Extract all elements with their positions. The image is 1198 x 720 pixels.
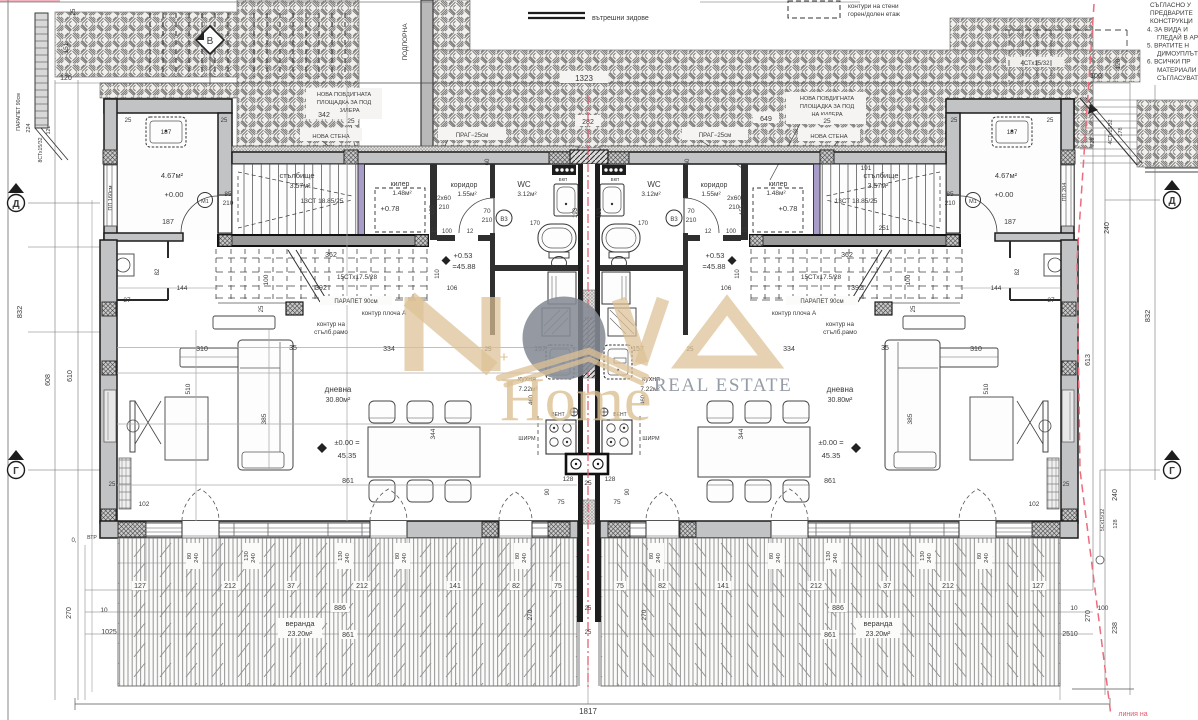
svg-text:25: 25 bbox=[585, 630, 592, 636]
svg-text:килер: килер bbox=[391, 181, 410, 188]
svg-text:СЪГЛАСУВАТ: СЪГЛАСУВАТ bbox=[1157, 75, 1198, 82]
svg-text:270: 270 bbox=[641, 609, 648, 620]
svg-text:210: 210 bbox=[729, 204, 740, 211]
svg-text:70: 70 bbox=[687, 208, 695, 215]
svg-text:861: 861 bbox=[342, 632, 354, 639]
svg-text:75: 75 bbox=[557, 499, 565, 506]
svg-text:6. ВСИЧКИ ПР: 6. ВСИЧКИ ПР bbox=[1147, 59, 1191, 66]
svg-text:130: 130 bbox=[244, 551, 250, 561]
svg-text:187: 187 bbox=[1007, 129, 1018, 136]
svg-text:ВКП: ВКП bbox=[611, 177, 620, 182]
svg-text:240: 240 bbox=[833, 553, 839, 563]
svg-text:80: 80 bbox=[769, 553, 775, 559]
svg-text:±0.00 =: ±0.00 = bbox=[818, 438, 844, 447]
svg-text:106: 106 bbox=[447, 285, 458, 292]
svg-text:151: 151 bbox=[63, 42, 70, 53]
svg-text:ПП 204: ПП 204 bbox=[1062, 183, 1068, 202]
svg-text:212: 212 bbox=[356, 583, 368, 590]
svg-text:861: 861 bbox=[342, 478, 354, 485]
svg-text:+: + bbox=[500, 349, 509, 366]
svg-text:М1: М1 bbox=[969, 199, 977, 205]
svg-text:510: 510 bbox=[983, 383, 990, 394]
svg-text:25: 25 bbox=[259, 305, 265, 312]
svg-text:155: 155 bbox=[430, 204, 436, 215]
svg-text:ПЛОЩАДКА ЗА ПОД: ПЛОЩАДКА ЗА ПОД bbox=[317, 100, 371, 106]
svg-text:1323: 1323 bbox=[575, 74, 593, 83]
svg-text:75: 75 bbox=[554, 583, 562, 590]
svg-text:82: 82 bbox=[1015, 268, 1021, 275]
svg-text:385: 385 bbox=[907, 413, 914, 424]
svg-text:155: 155 bbox=[740, 204, 746, 215]
svg-text:85: 85 bbox=[946, 191, 954, 198]
svg-text:82: 82 bbox=[658, 583, 666, 590]
svg-text:251: 251 bbox=[879, 225, 890, 232]
svg-text:270: 270 bbox=[66, 607, 73, 619]
svg-text:5. ВРАТИТЕ Н: 5. ВРАТИТЕ Н bbox=[1147, 43, 1189, 50]
svg-text:1.48м²: 1.48м² bbox=[766, 190, 786, 197]
svg-text:3.12м²: 3.12м² bbox=[641, 191, 661, 198]
svg-text:ШИРМ: ШИРМ bbox=[518, 436, 536, 442]
svg-text:362: 362 bbox=[841, 252, 853, 259]
svg-text:=45.88: =45.88 bbox=[452, 262, 475, 271]
svg-text:веранда: веранда bbox=[285, 619, 315, 628]
svg-text:127: 127 bbox=[1032, 583, 1044, 590]
svg-text:+0.53: +0.53 bbox=[454, 251, 473, 260]
svg-text:1025: 1025 bbox=[101, 629, 117, 636]
svg-text:392: 392 bbox=[315, 285, 327, 292]
svg-text:270: 270 bbox=[527, 609, 534, 620]
svg-text:193: 193 bbox=[573, 207, 579, 218]
svg-text:861: 861 bbox=[824, 478, 836, 485]
svg-text:127: 127 bbox=[134, 583, 146, 590]
svg-text:100: 100 bbox=[1090, 73, 1102, 80]
svg-text:+0.53: +0.53 bbox=[706, 251, 725, 260]
svg-text:Д: Д bbox=[1168, 196, 1175, 207]
svg-text:1.48м²: 1.48м² bbox=[392, 190, 412, 197]
svg-text:ПАРАПЕТ 90см: ПАРАПЕТ 90см bbox=[16, 93, 22, 131]
svg-text:НОВА ПОВДИГНАТА: НОВА ПОВДИГНАТА bbox=[800, 96, 855, 102]
svg-text:141: 141 bbox=[449, 583, 461, 590]
svg-text:128: 128 bbox=[605, 476, 616, 483]
svg-text:212: 212 bbox=[810, 583, 822, 590]
svg-text:362: 362 bbox=[325, 252, 337, 259]
svg-text:REAL ESTATE: REAL ESTATE bbox=[654, 375, 792, 396]
svg-text:344: 344 bbox=[430, 428, 437, 439]
svg-text:25: 25 bbox=[109, 482, 116, 488]
svg-text:контур на: контур на bbox=[826, 321, 855, 328]
svg-text:25: 25 bbox=[1047, 118, 1054, 124]
svg-text:4. ЗА ВИДА И: 4. ЗА ВИДА И bbox=[1147, 26, 1188, 33]
svg-text:37: 37 bbox=[883, 583, 891, 590]
svg-text:886: 886 bbox=[832, 605, 844, 612]
svg-text:613: 613 bbox=[1085, 354, 1092, 366]
svg-text:+0.00: +0.00 bbox=[995, 190, 1014, 199]
svg-text:310: 310 bbox=[196, 346, 208, 353]
svg-text:25: 25 bbox=[823, 118, 831, 125]
svg-text:212: 212 bbox=[224, 583, 236, 590]
svg-text:334: 334 bbox=[383, 346, 395, 353]
svg-text:В: В bbox=[207, 36, 214, 47]
svg-text:контур плоча А: контур плоча А bbox=[772, 310, 817, 317]
svg-text:линия на: линия на bbox=[1118, 711, 1147, 718]
svg-text:веранда: веранда bbox=[863, 619, 893, 628]
svg-text:130: 130 bbox=[338, 551, 344, 561]
svg-text:240: 240 bbox=[251, 553, 257, 563]
svg-text:385: 385 bbox=[261, 413, 268, 424]
svg-text:240: 240 bbox=[522, 553, 528, 563]
svg-text:дневна: дневна bbox=[325, 385, 352, 394]
svg-text:В3: В3 bbox=[500, 217, 508, 223]
svg-text:горен/долен етаж: горен/долен етаж bbox=[848, 11, 901, 18]
svg-text:35: 35 bbox=[289, 345, 297, 352]
svg-text:130: 130 bbox=[826, 551, 832, 561]
svg-text:2х60: 2х60 bbox=[437, 195, 451, 202]
svg-text:Г: Г bbox=[1169, 466, 1175, 477]
svg-text:12: 12 bbox=[467, 229, 474, 235]
svg-text:392: 392 bbox=[851, 285, 863, 292]
svg-text:832: 832 bbox=[15, 306, 24, 319]
svg-text:15СТх17.5/28: 15СТх17.5/28 bbox=[337, 274, 378, 281]
svg-text:80: 80 bbox=[395, 553, 401, 559]
svg-text:191: 191 bbox=[861, 165, 872, 172]
svg-text:8СТх15/32: 8СТх15/32 bbox=[38, 137, 44, 162]
svg-text:102: 102 bbox=[1029, 501, 1040, 508]
svg-text:Д: Д bbox=[12, 199, 19, 210]
svg-text:110: 110 bbox=[435, 269, 441, 279]
svg-text:75: 75 bbox=[613, 499, 621, 506]
svg-text:37: 37 bbox=[123, 297, 131, 304]
svg-text:30.80м²: 30.80м² bbox=[326, 397, 351, 404]
svg-text:240: 240 bbox=[1112, 489, 1119, 501]
svg-text:стълбище: стълбище bbox=[280, 171, 315, 180]
svg-text:+0.00: +0.00 bbox=[165, 190, 184, 199]
svg-text:187: 187 bbox=[161, 129, 172, 136]
svg-text:стълб.рамо: стълб.рамо bbox=[823, 328, 857, 336]
svg-text:60: 60 bbox=[485, 158, 491, 165]
svg-text:344: 344 bbox=[738, 428, 745, 439]
svg-text:Home: Home bbox=[500, 366, 652, 434]
svg-text:37: 37 bbox=[1047, 297, 1055, 304]
svg-text:дневна: дневна bbox=[827, 385, 854, 394]
svg-text:100: 100 bbox=[726, 229, 737, 235]
svg-text:НОВА СТЕНА: НОВА СТЕНА bbox=[810, 134, 847, 140]
svg-text:170: 170 bbox=[530, 221, 541, 227]
svg-text:1.55м²: 1.55м² bbox=[701, 191, 721, 198]
svg-text:1817: 1817 bbox=[579, 707, 597, 716]
svg-text:ВКП: ВКП bbox=[559, 177, 568, 182]
svg-text:25: 25 bbox=[1063, 482, 1070, 488]
svg-text:ПОДПОРНА: ПОДПОРНА bbox=[402, 23, 409, 61]
svg-text:106: 106 bbox=[721, 285, 732, 292]
svg-text:187: 187 bbox=[1004, 219, 1016, 226]
svg-text:12: 12 bbox=[741, 228, 748, 234]
svg-text:ПАРАПЕТ 90см: ПАРАПЕТ 90см bbox=[800, 299, 843, 305]
svg-text:212: 212 bbox=[942, 583, 954, 590]
svg-text:ГЛЕДАЙ В АР: ГЛЕДАЙ В АР bbox=[1157, 32, 1198, 41]
svg-text:120: 120 bbox=[1115, 58, 1122, 69]
svg-text:стълбище: стълбище bbox=[864, 171, 899, 180]
svg-text:60: 60 bbox=[685, 158, 691, 165]
svg-text:килер: килер bbox=[769, 181, 788, 188]
svg-text:649: 649 bbox=[760, 116, 772, 123]
svg-text:240: 240 bbox=[776, 553, 782, 563]
svg-text:75: 75 bbox=[616, 583, 624, 590]
svg-text:±0.00 =: ±0.00 = bbox=[334, 438, 360, 447]
svg-text:1.55м²: 1.55м² bbox=[457, 191, 477, 198]
svg-text:90: 90 bbox=[625, 488, 631, 495]
svg-text:13СТ 18.85/25: 13СТ 18.85/25 bbox=[301, 198, 344, 205]
svg-text:128: 128 bbox=[563, 476, 574, 483]
svg-text:82: 82 bbox=[155, 268, 161, 275]
svg-text:25: 25 bbox=[584, 480, 592, 487]
svg-text:НОВА СТЕНА: НОВА СТЕНА bbox=[312, 134, 349, 140]
svg-text:80: 80 bbox=[515, 553, 521, 559]
svg-text:240: 240 bbox=[402, 553, 408, 563]
svg-text:4.67м²: 4.67м² bbox=[161, 171, 184, 180]
svg-text:WC: WC bbox=[517, 180, 531, 189]
svg-text:4.67м²: 4.67м² bbox=[995, 171, 1018, 180]
svg-text:ПП 160см: ПП 160см bbox=[108, 185, 114, 210]
svg-text:15СТх17.5/28: 15СТх17.5/28 bbox=[801, 274, 842, 281]
svg-text:80: 80 bbox=[977, 553, 983, 559]
svg-text:82: 82 bbox=[512, 583, 520, 590]
svg-text:510: 510 bbox=[185, 383, 192, 394]
svg-text:контур на: контур на bbox=[317, 321, 346, 328]
svg-text:10: 10 bbox=[100, 607, 108, 614]
svg-text:861: 861 bbox=[824, 632, 836, 639]
svg-text:+0.78: +0.78 bbox=[779, 204, 798, 213]
svg-text:3.12м²: 3.12м² bbox=[517, 191, 537, 198]
svg-text:130: 130 bbox=[920, 551, 926, 561]
svg-text:224: 224 bbox=[26, 123, 32, 132]
svg-text:контур плоча А: контур плоча А bbox=[362, 310, 407, 317]
svg-text:210: 210 bbox=[439, 204, 450, 211]
svg-text:3.57м²: 3.57м² bbox=[868, 183, 889, 190]
svg-text:+0.78: +0.78 bbox=[381, 204, 400, 213]
svg-text:240: 240 bbox=[927, 553, 933, 563]
svg-text:240: 240 bbox=[1104, 222, 1111, 234]
svg-text:80: 80 bbox=[649, 553, 655, 559]
svg-text:100: 100 bbox=[442, 229, 453, 235]
svg-text:610: 610 bbox=[67, 370, 74, 382]
svg-text:25: 25 bbox=[221, 118, 228, 124]
svg-text:608: 608 bbox=[45, 374, 52, 386]
svg-text:187: 187 bbox=[162, 219, 174, 226]
svg-text:240: 240 bbox=[194, 553, 200, 563]
svg-text:вътрешни зидове: вътрешни зидове bbox=[592, 15, 649, 22]
svg-text:110: 110 bbox=[735, 269, 741, 279]
svg-text:85: 85 bbox=[224, 191, 232, 198]
svg-text:5Сх15/32: 5Сх15/32 bbox=[1100, 509, 1106, 531]
svg-text:НОВА ПОВДИГНАТА: НОВА ПОВДИГНАТА bbox=[317, 92, 372, 98]
svg-text:100: 100 bbox=[905, 274, 912, 285]
svg-text:128: 128 bbox=[1113, 519, 1119, 528]
svg-text:210: 210 bbox=[482, 217, 493, 224]
svg-text:ПРЕДВАРИТЕ: ПРЕДВАРИТЕ bbox=[1150, 10, 1193, 17]
svg-text:37: 37 bbox=[287, 583, 295, 590]
svg-text:13СТ 18.85/25: 13СТ 18.85/25 bbox=[835, 198, 878, 205]
svg-text:коридор: коридор bbox=[701, 182, 728, 189]
svg-text:25: 25 bbox=[125, 118, 132, 124]
svg-text:120: 120 bbox=[60, 75, 72, 82]
svg-text:240: 240 bbox=[656, 553, 662, 563]
svg-text:коридор: коридор bbox=[451, 182, 478, 189]
svg-text:25: 25 bbox=[347, 118, 355, 125]
svg-text:23.20м²: 23.20м² bbox=[288, 631, 313, 638]
svg-text:144: 144 bbox=[177, 285, 188, 292]
svg-text:МАТЕРИАЛИ: МАТЕРИАЛИ bbox=[1157, 67, 1197, 74]
svg-text:ВТР: ВТР bbox=[87, 535, 97, 541]
svg-text:240: 240 bbox=[984, 553, 990, 563]
svg-text:ПЛОЩАДКА ЗА ПОД: ПЛОЩАДКА ЗА ПОД bbox=[800, 104, 854, 110]
svg-text:12: 12 bbox=[431, 228, 438, 234]
svg-text:25: 25 bbox=[71, 8, 77, 15]
svg-text:25: 25 bbox=[585, 606, 592, 612]
svg-text:25: 25 bbox=[911, 305, 917, 312]
svg-text:ДИМОУПЛЪТ: ДИМОУПЛЪТ bbox=[1157, 51, 1198, 58]
svg-text:12: 12 bbox=[705, 229, 712, 235]
svg-text:В3: В3 bbox=[670, 217, 678, 223]
svg-text:210: 210 bbox=[686, 217, 697, 224]
svg-text:342: 342 bbox=[318, 112, 330, 119]
svg-text:ПРАГ−25см: ПРАГ−25см bbox=[456, 133, 488, 139]
svg-text:СЪГЛАСНО У: СЪГЛАСНО У bbox=[1150, 2, 1192, 9]
svg-text:10: 10 bbox=[1070, 605, 1078, 612]
svg-text:23.20м²: 23.20м² bbox=[866, 631, 891, 638]
svg-text:45.35: 45.35 bbox=[822, 451, 841, 460]
svg-text:КОНСТРУКЦИ: КОНСТРУКЦИ bbox=[1150, 18, 1193, 25]
svg-text:240: 240 bbox=[345, 553, 351, 563]
svg-text:ШИРМ: ШИРМ bbox=[642, 436, 660, 442]
svg-text:210: 210 bbox=[223, 200, 234, 207]
svg-text:2х60: 2х60 bbox=[727, 195, 741, 202]
svg-text:193: 193 bbox=[597, 207, 603, 218]
svg-text:30.80м²: 30.80м² bbox=[828, 397, 853, 404]
svg-text:832: 832 bbox=[1143, 310, 1152, 323]
svg-text:141: 141 bbox=[717, 583, 729, 590]
svg-text:80: 80 bbox=[187, 553, 193, 559]
svg-text:ПРАГ−25см: ПРАГ−25см bbox=[699, 133, 731, 139]
svg-text:25: 25 bbox=[951, 118, 958, 124]
svg-text:стълб.рамо: стълб.рамо bbox=[314, 328, 348, 336]
svg-text:контури на стени: контури на стени bbox=[848, 3, 899, 10]
svg-text:886: 886 bbox=[334, 605, 346, 612]
svg-text:144: 144 bbox=[991, 285, 1002, 292]
svg-text:90: 90 bbox=[545, 488, 551, 495]
svg-text:4СТх15/32: 4СТх15/32 bbox=[1021, 61, 1051, 67]
svg-text:334: 334 bbox=[783, 346, 795, 353]
svg-text:100: 100 bbox=[263, 274, 270, 285]
svg-text:238: 238 bbox=[1112, 622, 1119, 634]
svg-text:35: 35 bbox=[881, 345, 889, 352]
svg-text:210: 210 bbox=[945, 200, 956, 207]
svg-text:170: 170 bbox=[638, 221, 649, 227]
svg-text:100: 100 bbox=[1098, 605, 1109, 612]
svg-text:310: 310 bbox=[970, 346, 982, 353]
svg-text:45.35: 45.35 bbox=[338, 451, 357, 460]
svg-text:3.57м²: 3.57м² bbox=[290, 183, 311, 190]
svg-text:ПАРАПЕТ 90см: ПАРАПЕТ 90см bbox=[334, 299, 377, 305]
svg-text:=45.88: =45.88 bbox=[702, 262, 725, 271]
svg-text:70: 70 bbox=[483, 208, 491, 215]
svg-text:102: 102 bbox=[139, 501, 150, 508]
svg-text:Г: Г bbox=[13, 466, 19, 477]
svg-text:М1: М1 bbox=[201, 199, 209, 205]
svg-text:0,: 0, bbox=[71, 538, 76, 544]
svg-text:WC: WC bbox=[647, 180, 661, 189]
svg-text:2510: 2510 bbox=[1062, 631, 1078, 638]
